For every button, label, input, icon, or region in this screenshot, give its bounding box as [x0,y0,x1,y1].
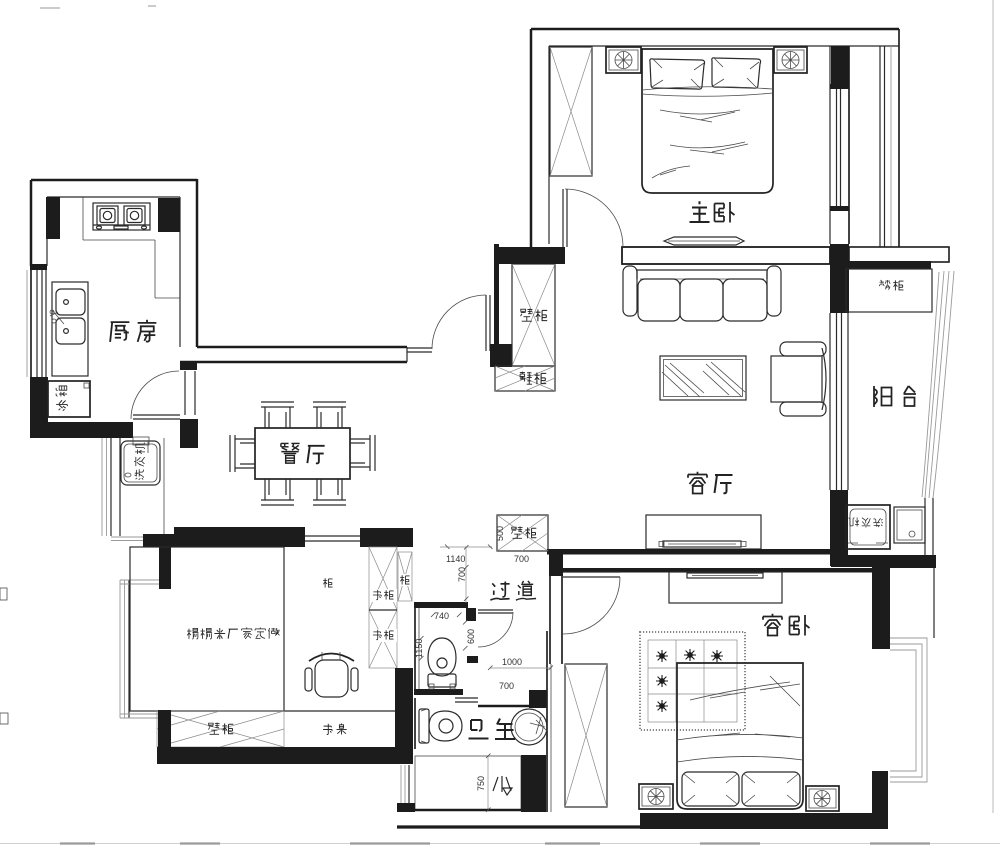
svg-text:1150: 1150 [414,639,424,658]
svg-text:700: 700 [457,567,467,582]
svg-text:600: 600 [466,629,476,644]
svg-text:1140: 1140 [446,554,465,564]
svg-text:700: 700 [499,681,514,691]
svg-text:700: 700 [514,554,529,564]
svg-text:740: 740 [434,611,449,621]
svg-text:500: 500 [495,526,505,541]
svg-text:1000: 1000 [502,657,522,667]
svg-text:750: 750 [476,776,486,791]
